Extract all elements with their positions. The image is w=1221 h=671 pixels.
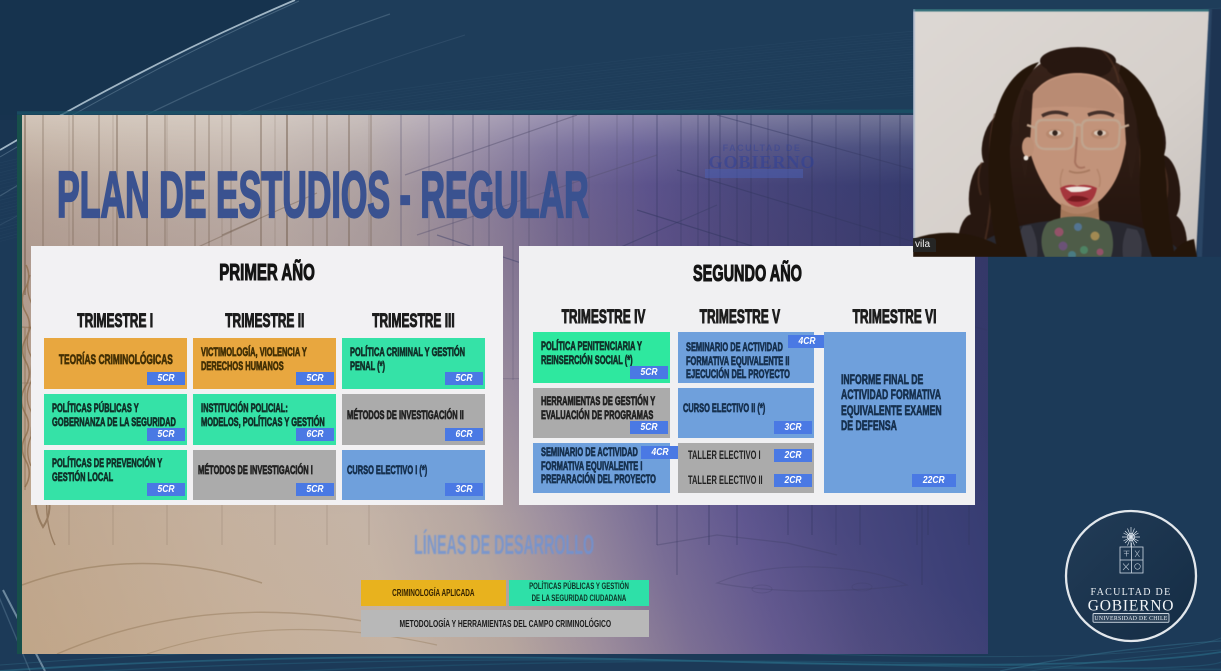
svg-text:FACULTAD DE: FACULTAD DE: [1090, 587, 1171, 598]
svg-text:GOBIERNO: GOBIERNO: [1088, 598, 1174, 615]
svg-text:UNIVERSIDAD DE CHILE: UNIVERSIDAD DE CHILE: [1094, 616, 1167, 622]
